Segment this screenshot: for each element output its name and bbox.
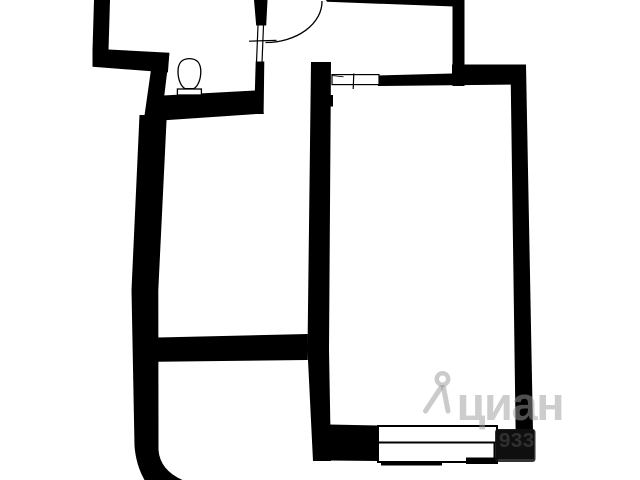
svg-text:933: 933 [499,429,535,452]
svg-text:циан: циан [457,377,564,430]
